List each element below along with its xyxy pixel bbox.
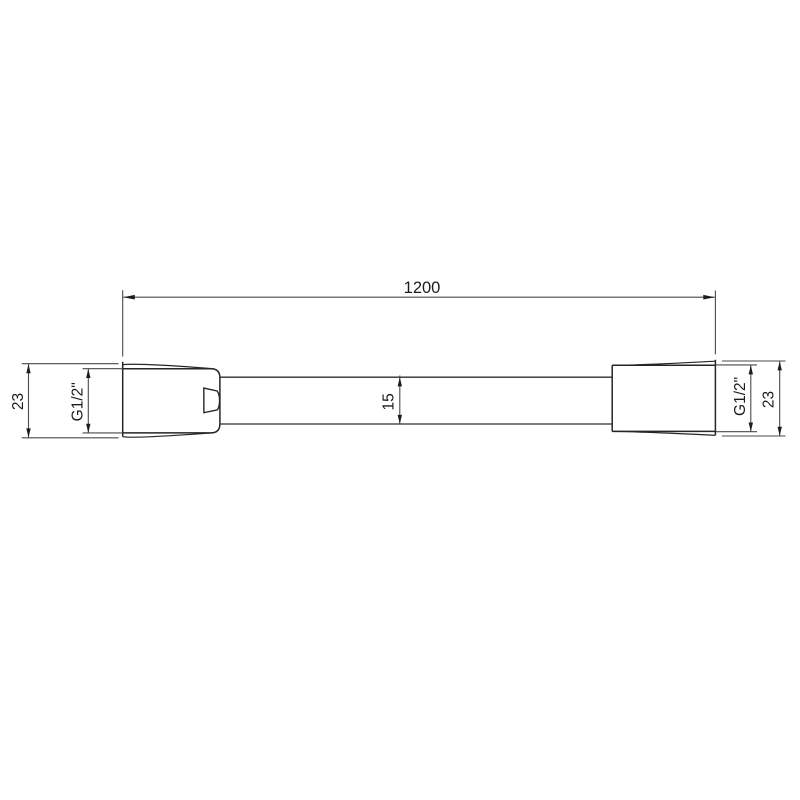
svg-text:G1/2": G1/2"	[732, 377, 749, 416]
svg-text:G1/2": G1/2"	[69, 382, 86, 421]
svg-text:23: 23	[10, 393, 27, 410]
svg-text:23: 23	[761, 391, 778, 408]
svg-text:1200: 1200	[404, 279, 441, 297]
svg-text:15: 15	[380, 393, 397, 410]
